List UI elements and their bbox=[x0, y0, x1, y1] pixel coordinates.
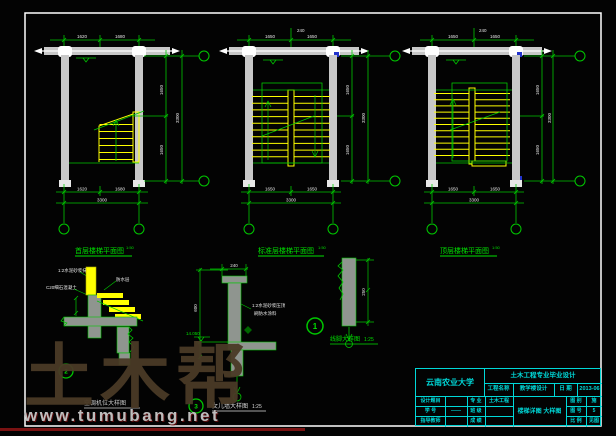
plan1-dim-top-a: 1620 bbox=[77, 34, 88, 39]
watermark-red-line bbox=[0, 428, 305, 431]
plan1-caption-scale: 1:50 bbox=[126, 245, 135, 250]
detailA-note-2: C20细石混凝土 bbox=[46, 284, 77, 291]
title-block: 云南农业大学 土木工程专业毕业设计 工程名称 教学楼设计 日 期 2013-06… bbox=[415, 368, 601, 426]
axis-bubble bbox=[390, 176, 400, 186]
title-block-project-type: 土木工程专业毕业设计 bbox=[484, 369, 602, 383]
title-block-sheetno-label: 图 号 bbox=[566, 406, 586, 416]
detailB-level-text: 14.050 bbox=[186, 331, 200, 336]
arrow-right-icon bbox=[172, 48, 180, 54]
stair-plan-top-floor: 1650 1650 240 bbox=[402, 28, 585, 234]
title-block-grade-value bbox=[485, 416, 513, 427]
plan2-dim-bottom-b: 1650 bbox=[307, 187, 318, 192]
plan3-caption: 顶层楼梯平面图 1:50 bbox=[440, 245, 501, 256]
axis-bubble bbox=[427, 224, 437, 234]
axis-bubble bbox=[59, 224, 69, 234]
plan2-dim-bottom-a: 1650 bbox=[265, 187, 276, 192]
plan2-dim-top-end: 240 bbox=[297, 28, 305, 33]
plan2-dim-top-a: 1650 bbox=[265, 34, 276, 39]
detailB-side-dim-text: 600 bbox=[193, 304, 198, 312]
detailB-coping bbox=[222, 276, 247, 283]
watermark-logo: 土木帮 bbox=[24, 342, 314, 412]
level-marker-icon bbox=[446, 60, 466, 64]
plan3-column-right bbox=[512, 55, 520, 182]
plan3-dim-bottom-a: 1650 bbox=[448, 187, 459, 192]
plan3-bottom-dimension-lines bbox=[424, 184, 524, 223]
plan3-handrail-horizontal bbox=[472, 161, 506, 166]
detailC-caption-scale: 1:25 bbox=[364, 337, 374, 343]
arrow-left-icon bbox=[34, 48, 42, 54]
stair-plan-first-floor: 1620 1680 bbox=[34, 34, 209, 234]
arrow-left-icon bbox=[402, 48, 410, 54]
title-block-sheettype-value: 施 bbox=[586, 396, 602, 406]
detailC-side-dim-text: 250 bbox=[361, 288, 366, 296]
title-block-grade-label: 成 绩 bbox=[467, 416, 485, 427]
arrow-right-icon bbox=[544, 48, 552, 54]
title-block-class-value bbox=[485, 406, 513, 416]
title-block-major-label: 专 业 bbox=[467, 396, 485, 406]
level-marker-icon bbox=[263, 60, 283, 64]
detailB-top-dim-text: 240 bbox=[230, 263, 238, 268]
plan1-dim-right-total: 3300 bbox=[175, 112, 180, 123]
plan1-column-base-left bbox=[59, 180, 71, 187]
plan3-handrail-vertical bbox=[469, 88, 475, 164]
title-block-project-value: 教学楼设计 bbox=[513, 383, 554, 396]
title-block-studentno-value: —— bbox=[445, 406, 467, 416]
plan3-dim-bottom-b: 1650 bbox=[490, 187, 501, 192]
title-block-date-label: 日 期 bbox=[554, 383, 577, 396]
detailA-floor-slab bbox=[64, 317, 137, 326]
detailC-marker-number: 1 bbox=[313, 322, 318, 331]
title-block-project-label: 工程名称 bbox=[484, 383, 513, 396]
plan2-dim-right-total: 3300 bbox=[361, 112, 366, 123]
title-block-class-label: 班 级 bbox=[467, 406, 485, 416]
title-block-date-value: 2013-06 bbox=[577, 383, 602, 396]
title-block-studentno-label: 学 号 bbox=[416, 406, 445, 416]
plan2-caption-scale: 1:50 bbox=[318, 245, 327, 250]
axis-bubble bbox=[511, 224, 521, 234]
title-block-sheettype-label: 图 别 bbox=[566, 396, 586, 406]
plan1-caption-text: 首层楼梯平面图 bbox=[75, 246, 124, 255]
plan3-dim-right-total: 3300 bbox=[547, 112, 552, 123]
axis-bubble bbox=[575, 51, 585, 61]
axis-bubble bbox=[134, 224, 144, 234]
title-block-topic-value bbox=[445, 396, 467, 406]
cad-drawing-canvas: 1620 1680 bbox=[0, 0, 616, 436]
plan3-stair-flight bbox=[469, 88, 506, 166]
plan2-handrail bbox=[288, 90, 294, 166]
plan1-caption: 首层楼梯平面图 1:50 bbox=[75, 245, 135, 256]
axis-bubble bbox=[199, 176, 209, 186]
title-block-advisor-label: 指导教师 bbox=[416, 416, 445, 427]
plan2-dim-bottom-total: 3300 bbox=[286, 198, 297, 203]
plan2-caption: 标准层楼梯平面图 1:50 bbox=[258, 245, 327, 256]
plan3-dim-top-a: 1650 bbox=[448, 34, 459, 39]
plan1-direction-arrow bbox=[113, 120, 119, 161]
stair-plan-typical-floor: 1650 1650 240 bbox=[219, 28, 400, 234]
plan3-dim-right-a: 1650 bbox=[535, 84, 540, 95]
detailA-wall-hatch bbox=[88, 295, 101, 338]
plan3-dim-right-b: 1650 bbox=[535, 144, 540, 155]
detailB-leader-line bbox=[241, 304, 251, 309]
arrow-left-icon bbox=[219, 48, 227, 54]
title-block-major-value: 土木工程 bbox=[485, 396, 513, 406]
title-block-advisor-value bbox=[445, 416, 467, 427]
plan3-caption-scale: 1:50 bbox=[492, 245, 501, 250]
plan1-dim-bottom-total: 3300 bbox=[97, 198, 108, 203]
title-block-topic-label: 设计题目 bbox=[416, 396, 445, 406]
plan2-top-dimension-lines bbox=[237, 28, 351, 47]
plan2-dim-top-b: 1650 bbox=[307, 34, 318, 39]
title-block-drawing-title: 楼梯详图 大样图 bbox=[513, 396, 566, 427]
title-block-university: 云南农业大学 bbox=[416, 369, 484, 396]
detail-moulding: 250 1 bbox=[307, 258, 374, 348]
detailC-caption: 线脚大样图 1:25 bbox=[330, 335, 378, 344]
detailB-diamond-marker bbox=[244, 326, 252, 334]
plan1-top-dimension-lines bbox=[50, 35, 155, 47]
detailB-parapet-wall bbox=[228, 283, 241, 343]
detailA-yellow-column bbox=[86, 267, 96, 295]
detailC-wall-strip bbox=[342, 258, 356, 326]
axis-bubble bbox=[390, 51, 400, 61]
watermark-url: www.tumubang.net bbox=[24, 406, 220, 426]
plan1-dim-top-b: 1680 bbox=[115, 34, 126, 39]
level-marker-icon bbox=[76, 58, 96, 62]
plan3-dim-bottom-total: 3300 bbox=[469, 198, 480, 203]
plan2-bottom-dimension-lines bbox=[241, 184, 341, 223]
detailA-side-dim bbox=[74, 296, 78, 316]
axis-bubble bbox=[244, 224, 254, 234]
title-block-ratio-value: 见图 bbox=[586, 416, 602, 427]
axis-bubble bbox=[575, 176, 585, 186]
plan2-dim-right-a: 1650 bbox=[345, 84, 350, 95]
plan2-column-left bbox=[245, 55, 253, 182]
plan3-top-dimension-lines bbox=[420, 28, 534, 47]
detailB-note-1: 1:2水泥砂浆压顶 bbox=[252, 302, 286, 309]
plan3-caption-text: 顶层楼梯平面图 bbox=[440, 246, 489, 255]
plan1-column-left bbox=[61, 55, 69, 182]
title-block-sheetno-value: 5 bbox=[586, 406, 602, 416]
detailC-caption-text: 线脚大样图 bbox=[330, 335, 360, 343]
title-block-ratio-label: 比 例 bbox=[566, 416, 586, 427]
axis-bubble bbox=[199, 51, 209, 61]
plan2-column-right bbox=[329, 55, 337, 182]
plan1-dim-right-a: 1650 bbox=[159, 84, 164, 95]
plan3-dim-top-b: 1650 bbox=[490, 34, 501, 39]
plan1-dim-bottom-a: 1620 bbox=[77, 187, 88, 192]
plan2-stair-flights bbox=[288, 90, 294, 166]
plan3-dim-top-end: 240 bbox=[479, 28, 487, 33]
plan1-stair-flight bbox=[99, 112, 139, 162]
axis-bubble bbox=[328, 224, 338, 234]
plan1-bottom-dimension-lines bbox=[56, 184, 148, 223]
plan1-dim-bottom-b: 1680 bbox=[115, 187, 126, 192]
plan2-caption-text: 标准层楼梯平面图 bbox=[258, 246, 314, 255]
detailB-note-2: 刷防水涂料 bbox=[254, 310, 277, 317]
detailA-note-3: 防水层 bbox=[116, 276, 130, 283]
plan2-dim-right-b: 1650 bbox=[345, 144, 350, 155]
plan1-dim-right-b: 1650 bbox=[159, 144, 164, 155]
